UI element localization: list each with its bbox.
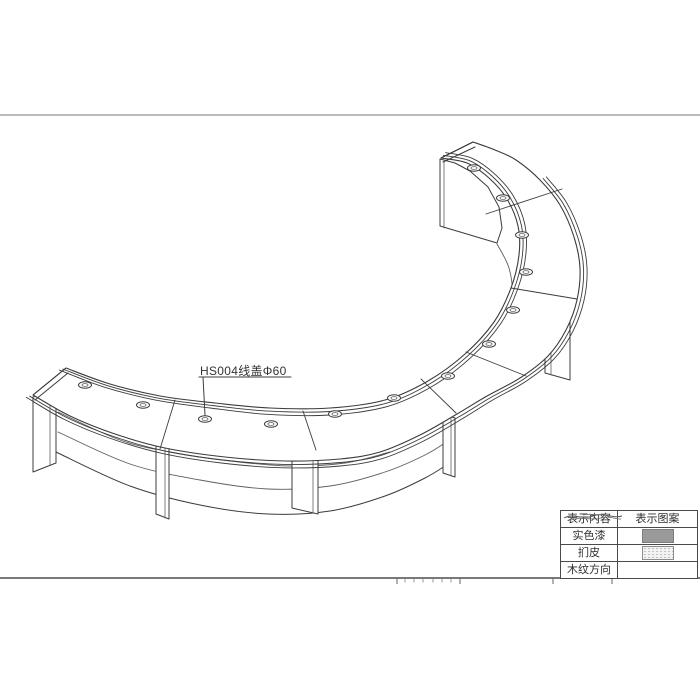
upholstery-stipple-swatch [642, 546, 674, 560]
legend-label-wood-grain: 木纹方向 [561, 562, 618, 579]
desktop-band [33, 142, 580, 461]
legend-row-wood-grain: 木纹方向 [561, 562, 698, 579]
drawing-sheet: HS004线盖Φ60 表示内容 表示图案 实色漆 扪皮 木纹方向 [0, 0, 700, 700]
legend-header-pattern: 表示图案 [618, 511, 698, 528]
legend-label-solid-paint: 实色漆 [561, 528, 618, 545]
part-label: HS004线盖Φ60 [200, 362, 287, 379]
cad-curved-desk-drawing [0, 0, 700, 700]
part-label-text: HS004线盖Φ60 [200, 364, 287, 378]
legend-table: 表示内容 表示图案 实色漆 扪皮 木纹方向 [560, 510, 698, 579]
solid-paint-swatch [642, 529, 674, 543]
legend-row-upholstery: 扪皮 [561, 545, 698, 562]
legend-label-upholstery: 扪皮 [561, 545, 618, 562]
legend-row-solid-paint: 实色漆 [561, 528, 698, 545]
